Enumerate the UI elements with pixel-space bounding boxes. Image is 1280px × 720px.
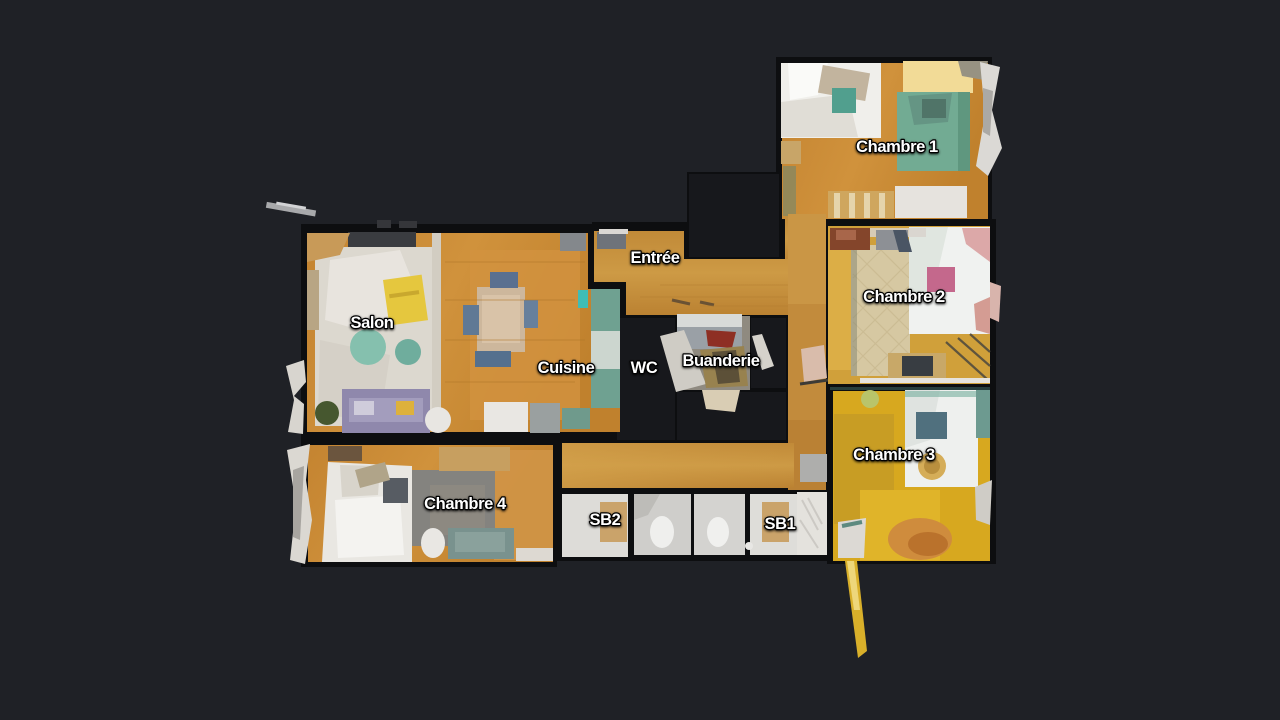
- svg-text:SB2: SB2: [590, 511, 621, 529]
- svg-text:Buanderie: Buanderie: [682, 352, 759, 370]
- svg-text:SB1: SB1: [765, 515, 796, 533]
- svg-text:Entrée: Entrée: [631, 249, 680, 267]
- svg-text:WC: WC: [631, 359, 658, 377]
- svg-text:Chambre 2: Chambre 2: [863, 288, 945, 306]
- svg-text:Salon: Salon: [351, 314, 394, 332]
- svg-text:Chambre 3: Chambre 3: [853, 446, 935, 464]
- svg-text:Chambre 1: Chambre 1: [856, 138, 938, 156]
- svg-text:Chambre 4: Chambre 4: [424, 495, 507, 513]
- svg-text:Cuisine: Cuisine: [538, 359, 595, 377]
